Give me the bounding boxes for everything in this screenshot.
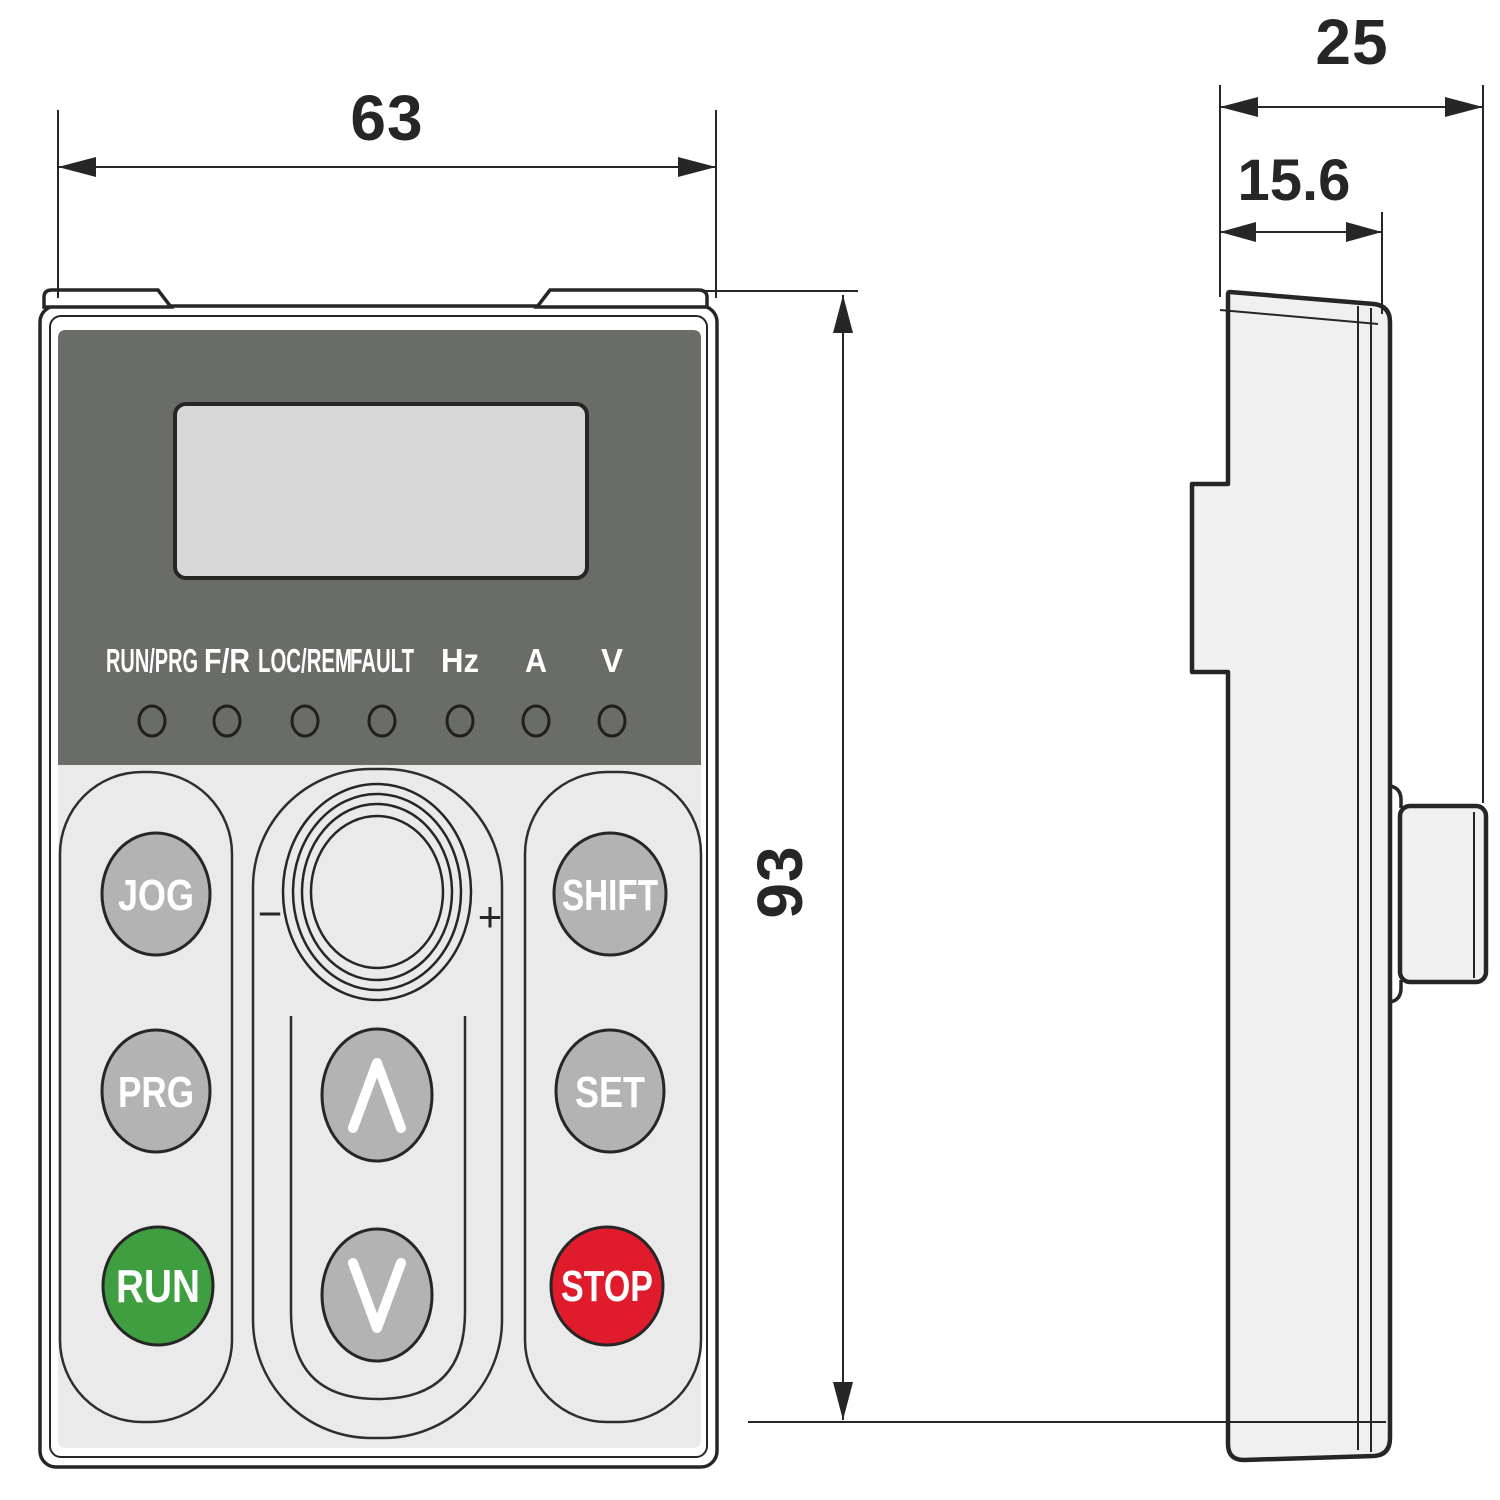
jog-label: JOG (118, 871, 194, 920)
dim-63-value: 63 (350, 82, 423, 154)
led-hz (447, 706, 473, 736)
dim-25-value: 25 (1315, 6, 1388, 78)
dim-63-arrow-right (678, 157, 716, 177)
prg-button[interactable]: PRG (102, 1030, 210, 1152)
dimension-side-panel-depth: 15.6 (1220, 148, 1382, 314)
led-label-f-r: F/R (204, 642, 250, 679)
side-view (1192, 292, 1486, 1460)
led-label-v: V (601, 642, 623, 679)
front-view: RUN/PRG F/R LOC/REM FAULT Hz A V (40, 290, 717, 1467)
led-a (523, 706, 549, 736)
side-body (1192, 292, 1390, 1460)
led-v (599, 706, 625, 736)
dim-25-arrow-left (1220, 97, 1258, 117)
dimension-front-height: 93 (700, 291, 1217, 1422)
led-fault (369, 706, 395, 736)
up-arrow-button[interactable] (322, 1029, 432, 1161)
led-f-r (214, 706, 240, 736)
dim-93-arrow-top (833, 295, 853, 333)
shift-label: SHIFT (562, 871, 658, 920)
run-label: RUN (116, 1260, 200, 1312)
led-label-fault: FAULT (350, 642, 414, 679)
led-label-loc-rem: LOC/REM (258, 642, 352, 679)
stop-button[interactable]: STOP (551, 1227, 663, 1345)
dim-156-arrow-right (1346, 222, 1382, 242)
dimension-front-width: 63 (58, 82, 716, 298)
run-button[interactable]: RUN (103, 1227, 213, 1345)
led-run-prg (139, 706, 165, 736)
lcd-display (175, 404, 587, 578)
knob[interactable] (283, 784, 471, 1000)
led-label-run-prg: RUN/PRG (106, 642, 198, 679)
prg-label: PRG (118, 1068, 194, 1117)
dim-156-arrow-left (1220, 222, 1256, 242)
led-label-a: A (525, 642, 547, 679)
down-arrow-button[interactable] (322, 1229, 432, 1361)
top-tab-right (537, 290, 707, 307)
set-label: SET (575, 1068, 645, 1117)
dim-93-value: 93 (744, 845, 816, 918)
led-labels: RUN/PRG F/R LOC/REM FAULT Hz A V (106, 642, 623, 679)
knob-plus-sign: + (478, 893, 503, 940)
shift-button[interactable]: SHIFT (554, 833, 666, 955)
top-tab-left (44, 290, 171, 307)
set-button[interactable]: SET (556, 1030, 664, 1152)
jog-button[interactable]: JOG (102, 833, 210, 955)
drawing-svg: RUN/PRG F/R LOC/REM FAULT Hz A V (0, 0, 1500, 1500)
led-loc-rem (292, 706, 318, 736)
dim-156-value: 15.6 (1238, 148, 1351, 213)
led-label-hz: Hz (441, 642, 479, 679)
dim-63-arrow-left (58, 157, 96, 177)
knob-minus-sign: − (258, 890, 283, 937)
dim-93-arrow-bottom (833, 1382, 853, 1420)
keypad-dimension-drawing: RUN/PRG F/R LOC/REM FAULT Hz A V (0, 0, 1500, 1500)
stop-label: STOP (561, 1262, 653, 1311)
dim-25-arrow-right (1445, 97, 1483, 117)
